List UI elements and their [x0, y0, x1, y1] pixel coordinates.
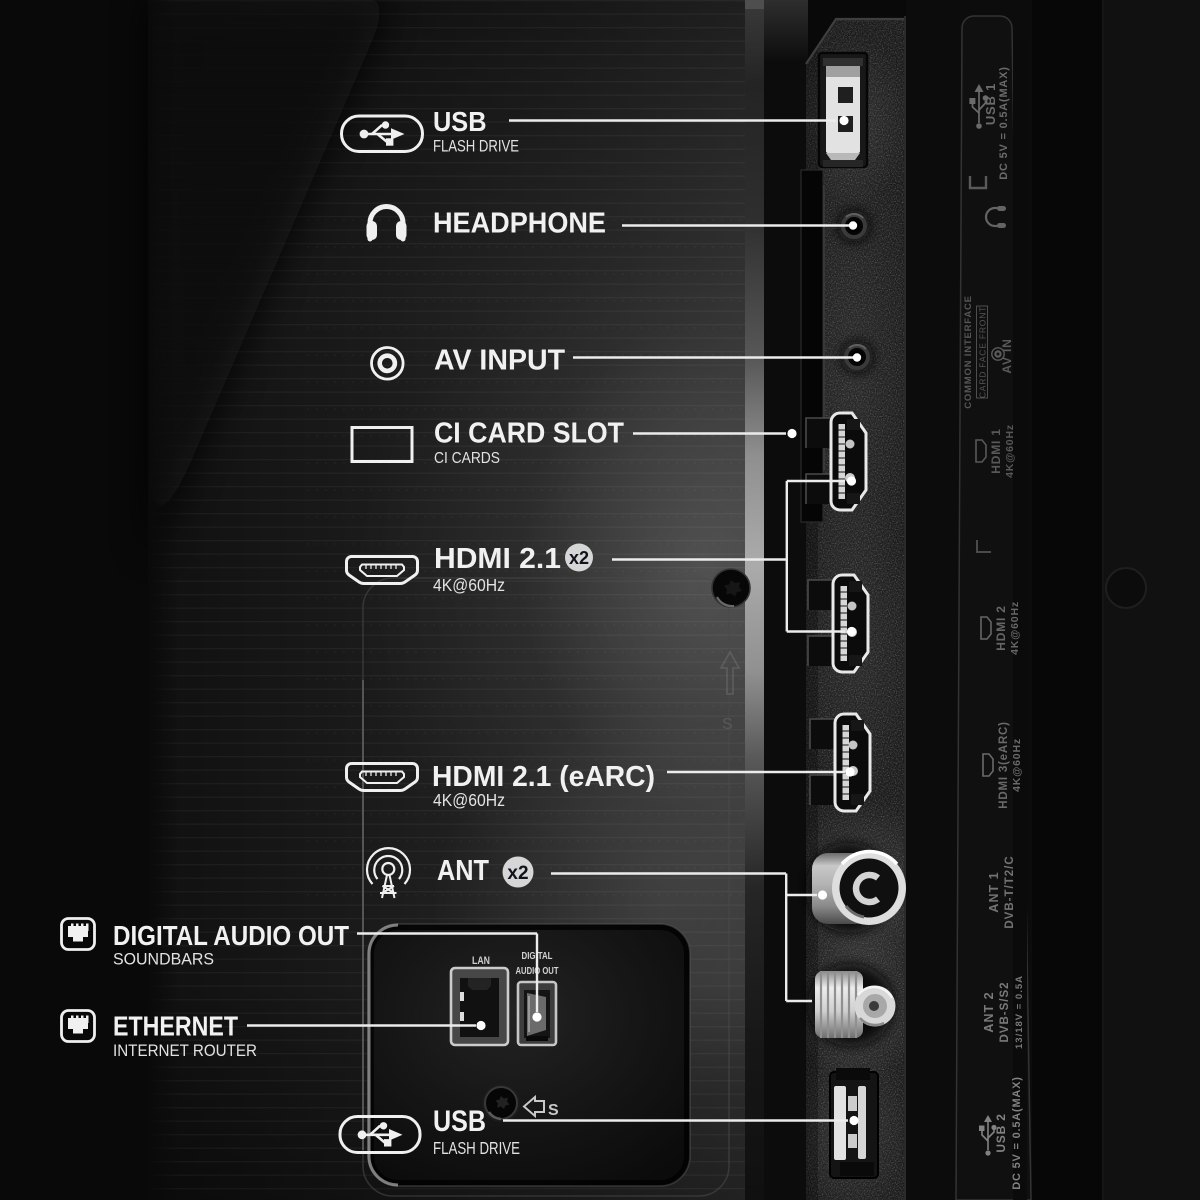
- svg-text:ANT: ANT: [437, 855, 489, 887]
- svg-text:4K@60Hz: 4K@60Hz: [1004, 424, 1016, 478]
- svg-text:CARD FACE FRONT: CARD FACE FRONT: [978, 306, 988, 398]
- svg-text:LAN: LAN: [472, 955, 490, 967]
- svg-text:x2: x2: [507, 863, 528, 884]
- svg-text:CI CARDS: CI CARDS: [434, 450, 500, 467]
- svg-text:HDMI 1: HDMI 1: [989, 428, 1003, 473]
- svg-text:USB: USB: [433, 1105, 486, 1138]
- svg-text:USB 2: USB 2: [994, 1113, 1008, 1152]
- svg-text:AV IN: AV IN: [1000, 338, 1014, 373]
- svg-text:x2: x2: [569, 548, 589, 568]
- svg-text:4K@60Hz: 4K@60Hz: [1009, 601, 1021, 655]
- svg-text:USB 1: USB 1: [983, 83, 998, 125]
- svg-text:ANT 2: ANT 2: [982, 991, 996, 1032]
- svg-text:DIGITAL AUDIO OUT: DIGITAL AUDIO OUT: [113, 920, 349, 951]
- svg-text:HDMI 2: HDMI 2: [994, 605, 1008, 650]
- svg-text:DVB-S/S2: DVB-S/S2: [999, 981, 1011, 1042]
- svg-text:S: S: [722, 716, 733, 733]
- svg-text:FLASH DRIVE: FLASH DRIVE: [433, 136, 519, 155]
- svg-text:DC 5V = 0.5A(MAX): DC 5V = 0.5A(MAX): [998, 66, 1010, 180]
- svg-text:S: S: [548, 1102, 559, 1119]
- svg-text:USB: USB: [433, 106, 487, 137]
- svg-text:ANT 1: ANT 1: [987, 871, 1001, 912]
- svg-text:HDMI 2.1: HDMI 2.1: [434, 543, 561, 575]
- svg-text:DVB-T/T2/C: DVB-T/T2/C: [1004, 855, 1016, 928]
- svg-text:COMMON INTERFACE: COMMON INTERFACE: [963, 295, 974, 409]
- svg-text:HDMI 2.1 (eARC): HDMI 2.1 (eARC): [432, 761, 655, 793]
- svg-text:4K@60Hz: 4K@60Hz: [1011, 738, 1023, 792]
- svg-text:HEADPHONE: HEADPHONE: [433, 208, 606, 240]
- svg-text:13/18V = 0.5A: 13/18V = 0.5A: [1014, 975, 1025, 1049]
- svg-text:CI CARD SLOT: CI CARD SLOT: [434, 418, 624, 450]
- svg-text:SOUNDBARS: SOUNDBARS: [113, 950, 214, 969]
- svg-text:AV INPUT: AV INPUT: [434, 344, 565, 376]
- svg-text:HDMI 3(eARC): HDMI 3(eARC): [998, 721, 1010, 809]
- svg-text:INTERNET ROUTER: INTERNET ROUTER: [113, 1041, 257, 1060]
- svg-text:DC 5V = 0.5A(MAX): DC 5V = 0.5A(MAX): [1011, 1076, 1023, 1190]
- svg-text:4K@60Hz: 4K@60Hz: [433, 575, 505, 595]
- svg-text:FLASH DRIVE: FLASH DRIVE: [433, 1138, 520, 1158]
- svg-text:ETHERNET: ETHERNET: [113, 1011, 238, 1042]
- svg-text:4K@60Hz: 4K@60Hz: [433, 790, 505, 810]
